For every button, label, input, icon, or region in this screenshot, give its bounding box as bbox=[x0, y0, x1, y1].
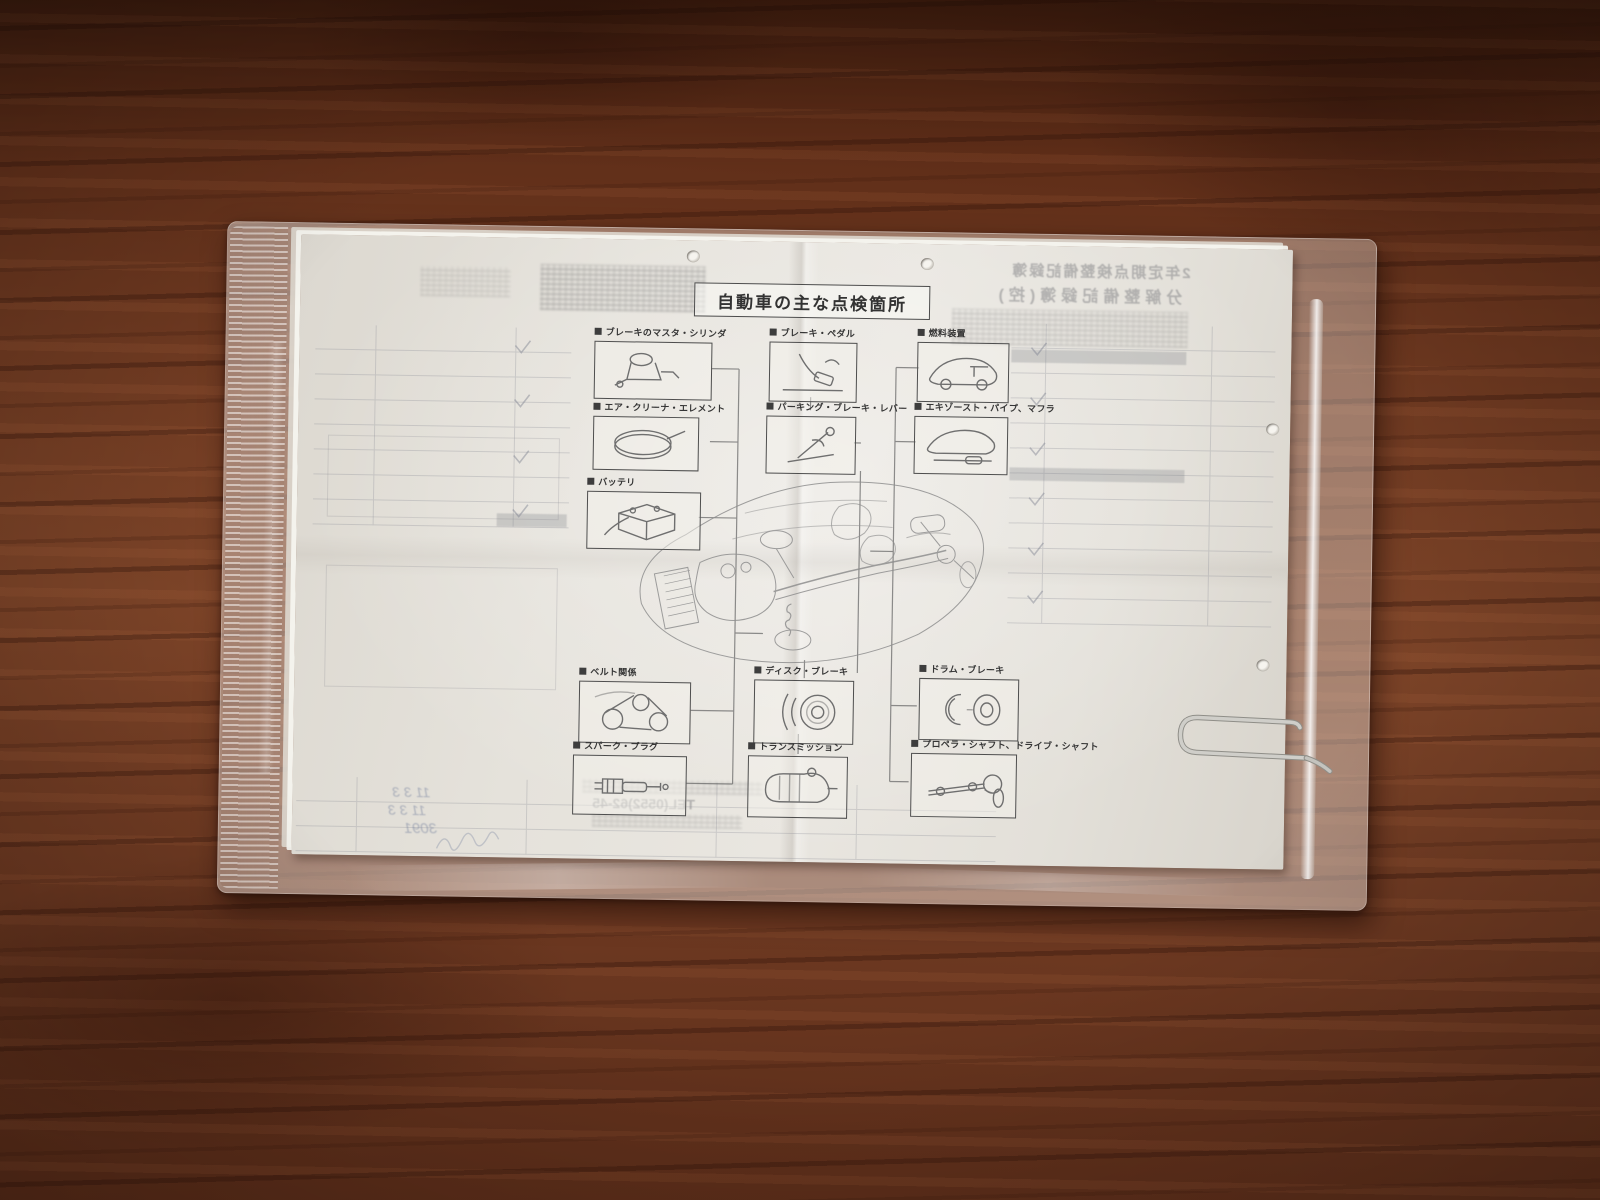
paper-stack-edge bbox=[1300, 299, 1323, 879]
callout-label: ブレーキのマスタ・シリンダ bbox=[606, 325, 727, 340]
bullet-square-icon bbox=[770, 329, 777, 336]
callout-transmission: トランスミッション bbox=[747, 739, 848, 819]
bleedthrough-record-book-title: 2年定期点検整備記録簿 bbox=[941, 258, 1191, 283]
drum-brake-icon bbox=[926, 684, 1011, 735]
bleedthrough-record-book-subtitle: 分解整備記録簿(控) bbox=[962, 281, 1182, 308]
punch-hole bbox=[687, 250, 700, 262]
page-title: 自動車の主な点検箇所 bbox=[694, 282, 931, 320]
punch-hole bbox=[921, 258, 934, 270]
bullet-square-icon bbox=[579, 668, 586, 675]
callout-label: ブレーキ・ペダル bbox=[781, 326, 856, 340]
bullet-square-icon bbox=[748, 742, 755, 749]
callout-label: スパーク・プラグ bbox=[584, 739, 658, 753]
bleedthrough-text-block bbox=[420, 266, 510, 297]
callout-label: ディスク・ブレーキ bbox=[765, 664, 848, 678]
bullet-square-icon bbox=[587, 478, 594, 485]
plastic-reflection bbox=[858, 867, 1238, 898]
bullet-square-icon bbox=[911, 740, 918, 747]
fuel-system-car-icon bbox=[924, 348, 1003, 397]
callout-label: 燃料装置 bbox=[929, 326, 966, 340]
callout-disc-brake: ディスク・ブレーキ bbox=[753, 663, 854, 745]
bleedthrough-text-block bbox=[540, 264, 706, 313]
callout-brake-pedal: ブレーキ・ペダル bbox=[769, 326, 858, 403]
callout-label: ドラム・ブレーキ bbox=[930, 662, 1004, 676]
bullet-square-icon bbox=[573, 742, 580, 749]
callout-air-cleaner-element: エア・クリーナ・エレメント bbox=[592, 400, 725, 472]
callout-label: パーキング・ブレーキ・レバー bbox=[777, 400, 907, 415]
callout-drum-brake: ドラム・ブレーキ bbox=[918, 662, 1019, 742]
brake-pedal-icon bbox=[777, 348, 850, 397]
bullet-square-icon bbox=[595, 328, 602, 335]
plastic-sleeve-with-document: 2年定期点検整備記録簿 分解整備記録簿(控) bbox=[217, 221, 1377, 911]
air-cleaner-icon bbox=[601, 422, 692, 465]
callout-label: エキゾースト・パイプ、マフラ bbox=[925, 400, 1055, 415]
bullet-square-icon bbox=[766, 403, 773, 410]
callout-label: バッテリ bbox=[598, 475, 635, 489]
callout-label: プロペラ・シャフト、ドライブ・シャフト bbox=[922, 737, 1099, 753]
bullet-square-icon bbox=[593, 403, 600, 410]
punch-hole bbox=[1256, 659, 1269, 671]
brake-master-cylinder-icon bbox=[603, 347, 704, 395]
disc-brake-icon bbox=[761, 685, 846, 738]
propeller-shaft-icon bbox=[918, 759, 1009, 812]
transmission-icon bbox=[755, 761, 840, 812]
callout-brake-master-cylinder: ブレーキのマスタ・シリンダ bbox=[594, 325, 727, 401]
bleedthrough-handwritten-date: 11 3 3 bbox=[392, 784, 430, 801]
callout-belts: ベルト関係 bbox=[578, 665, 691, 745]
bleedthrough-checkmarks bbox=[508, 337, 535, 557]
parking-brake-lever-icon bbox=[774, 422, 849, 469]
battery-icon bbox=[594, 497, 693, 545]
bleedthrough-handwritten-date: 11 3 3 bbox=[388, 802, 426, 819]
bleedthrough-stamp-scribble bbox=[431, 826, 501, 857]
spark-plug-icon bbox=[580, 761, 679, 811]
bullet-square-icon bbox=[754, 666, 761, 673]
photo-of-inspection-pamphlet: 2年定期点検整備記録簿 分解整備記録簿(控) bbox=[0, 0, 1600, 1200]
belts-icon bbox=[586, 687, 683, 739]
callout-propeller-shaft-drive-shaft: プロペラ・シャフト、ドライブ・シャフト bbox=[910, 737, 1099, 820]
callout-exhaust-pipe-muffler: エキゾースト・パイプ、マフラ bbox=[913, 400, 1055, 476]
wood-grain-streak bbox=[300, 0, 800, 140]
callout-label: ベルト関係 bbox=[590, 665, 637, 679]
bullet-square-icon bbox=[918, 329, 925, 336]
page-title-text: 自動車の主な点検箇所 bbox=[717, 287, 907, 315]
plastic-reflection bbox=[348, 861, 768, 891]
callout-spark-plug: スパーク・プラグ bbox=[572, 739, 687, 817]
exhaust-pipe-muffler-icon bbox=[922, 422, 1001, 469]
callout-fuel-system: 燃料装置 bbox=[917, 326, 1010, 403]
callout-parking-brake-lever: パーキング・ブレーキ・レバー bbox=[765, 400, 907, 476]
sleeve-serrated-edge bbox=[220, 226, 288, 889]
punch-hole bbox=[1266, 423, 1279, 435]
bullet-square-icon bbox=[919, 665, 926, 672]
bleedthrough-box bbox=[324, 565, 558, 691]
callout-battery: バッテリ bbox=[586, 475, 701, 551]
callout-label: トランスミッション bbox=[759, 739, 843, 753]
inspection-sheet-page: 2年定期点検整備記録簿 分解整備記録簿(控) bbox=[291, 234, 1293, 870]
bullet-square-icon bbox=[914, 403, 921, 410]
callout-label: エア・クリーナ・エレメント bbox=[604, 400, 725, 415]
bleedthrough-checkmarks bbox=[1023, 338, 1052, 638]
